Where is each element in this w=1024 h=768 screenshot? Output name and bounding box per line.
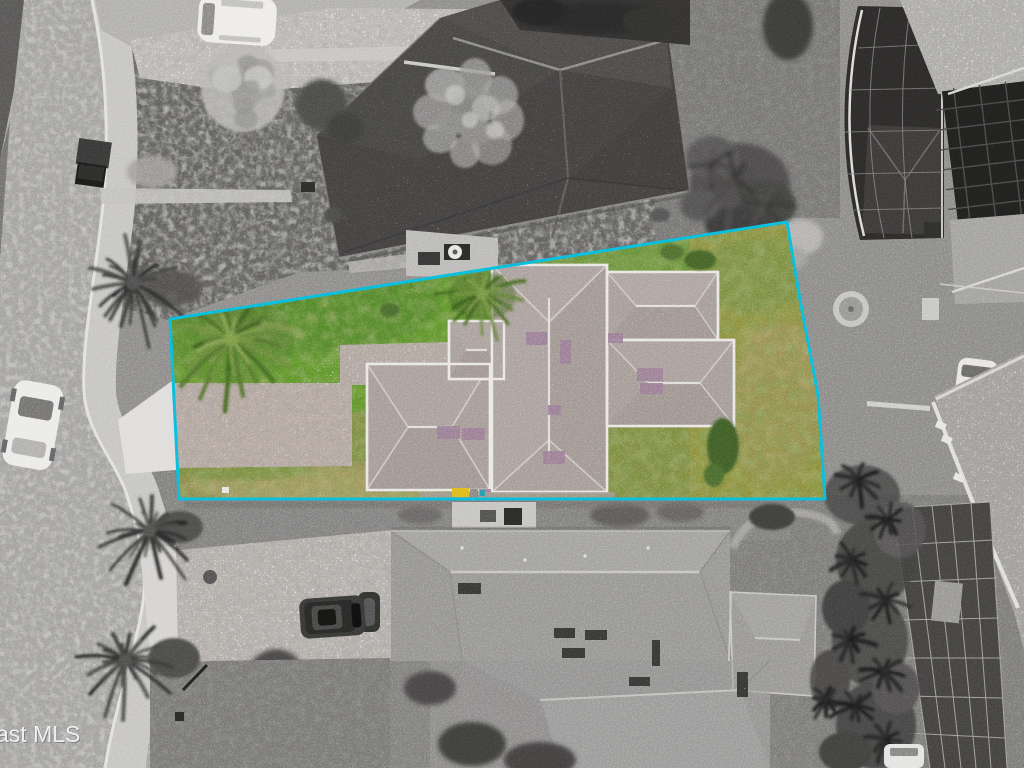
svg-text:ast MLS: ast MLS [0, 721, 80, 747]
